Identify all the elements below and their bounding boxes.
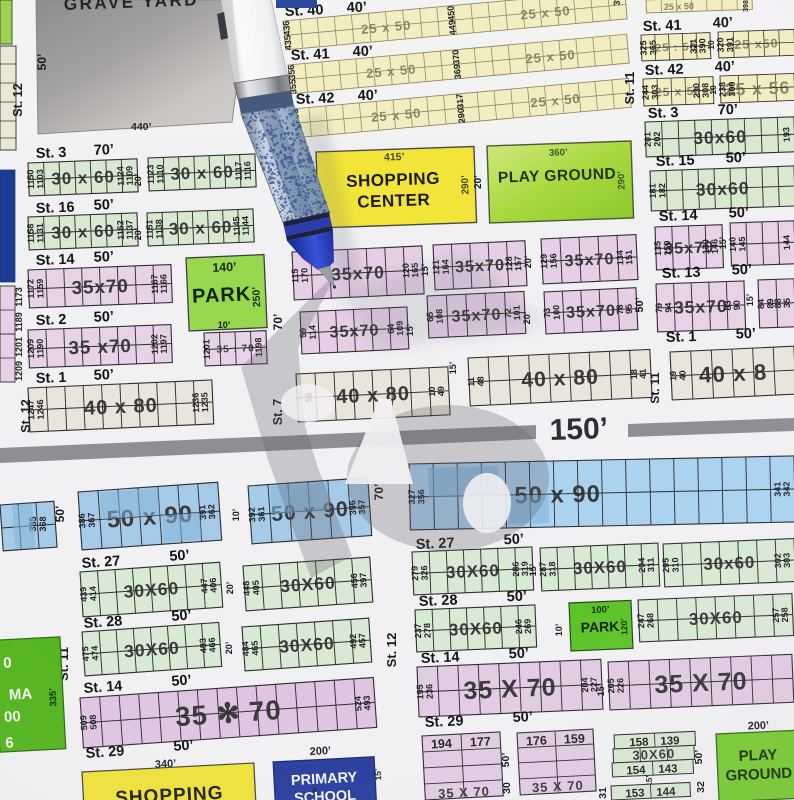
svg-text:120’: 120’: [619, 618, 630, 635]
svg-text:369: 369: [452, 64, 463, 80]
svg-text:50’: 50’: [171, 672, 192, 689]
svg-text:150: 150: [662, 240, 673, 255]
svg-text:474: 474: [89, 645, 100, 661]
svg-text:360’: 360’: [549, 147, 568, 159]
svg-text:32: 32: [695, 781, 707, 793]
svg-text:398: 398: [743, 0, 750, 12]
svg-text:156: 156: [548, 253, 559, 268]
svg-text:193: 193: [781, 127, 792, 142]
svg-text:50’: 50’: [93, 249, 114, 266]
svg-text:236: 236: [424, 684, 435, 699]
svg-text:100’: 100’: [591, 604, 610, 616]
svg-text:1201: 1201: [201, 339, 212, 359]
svg-text:290: 290: [456, 108, 467, 124]
svg-text:PARK: PARK: [580, 618, 619, 636]
svg-text:MA: MA: [8, 685, 32, 703]
svg-text:415’: 415’: [384, 151, 405, 164]
svg-text:50’: 50’: [500, 753, 512, 768]
svg-text:0: 0: [3, 654, 12, 671]
svg-text:144: 144: [656, 786, 676, 799]
svg-text:St. 42: St. 42: [645, 62, 684, 79]
svg-text:310: 310: [670, 557, 681, 572]
svg-text:1116: 1116: [242, 161, 253, 180]
svg-text:365: 365: [648, 40, 659, 55]
svg-text:50’: 50’: [169, 547, 190, 564]
svg-text:15’: 15’: [596, 684, 606, 697]
svg-text:50’: 50’: [693, 750, 705, 765]
svg-text:457: 457: [357, 633, 368, 649]
svg-text:362: 362: [206, 504, 217, 520]
svg-text:CENTER: CENTER: [357, 190, 431, 212]
svg-text:PLAY: PLAY: [738, 746, 777, 765]
svg-text:St. 12: St. 12: [384, 633, 399, 668]
svg-text:50’: 50’: [736, 326, 757, 343]
svg-text:303: 303: [650, 84, 661, 99]
svg-text:50’: 50’: [512, 709, 533, 726]
svg-text:100: 100: [551, 305, 562, 320]
svg-text:St. 14: St. 14: [36, 252, 75, 269]
svg-text:15’: 15’: [528, 564, 538, 577]
svg-text:15’: 15’: [718, 237, 728, 250]
svg-text:31: 31: [597, 787, 609, 799]
svg-text:143: 143: [658, 763, 678, 776]
svg-text:157: 157: [513, 256, 524, 271]
svg-text:398: 398: [611, 0, 622, 6]
svg-text:1173: 1173: [14, 287, 24, 307]
svg-text:449: 449: [447, 20, 458, 36]
svg-text:50’: 50’: [53, 506, 67, 523]
svg-text:30: 30: [501, 782, 513, 794]
svg-text:95: 95: [624, 304, 634, 314]
svg-text:154: 154: [626, 764, 646, 777]
svg-text:278: 278: [422, 623, 433, 638]
svg-text:258: 258: [779, 607, 790, 622]
svg-text:370: 370: [450, 49, 461, 65]
svg-text:50’: 50’: [729, 205, 750, 222]
svg-text:450: 450: [445, 5, 456, 21]
svg-text:1209: 1209: [14, 361, 24, 381]
svg-text:309: 309: [727, 81, 738, 96]
svg-text:1197: 1197: [158, 334, 169, 354]
svg-text:40’: 40’: [713, 15, 734, 32]
svg-text:St. 2: St. 2: [36, 312, 67, 329]
svg-text:1189: 1189: [14, 312, 24, 332]
svg-text:20’: 20’: [225, 582, 235, 595]
svg-text:40’: 40’: [715, 59, 736, 76]
svg-text:St. 12: St. 12: [19, 399, 33, 432]
svg-text:508: 508: [88, 714, 99, 730]
svg-text:1159: 1159: [35, 279, 46, 299]
svg-text:318: 318: [547, 561, 558, 576]
svg-text:194: 194: [431, 736, 453, 751]
svg-text:50’: 50’: [35, 54, 49, 71]
svg-text:335’: 335’: [48, 688, 60, 707]
svg-text:St. 29: St. 29: [424, 713, 463, 731]
svg-text:St. 3: St. 3: [36, 145, 67, 162]
svg-text:SCHOOL: SCHOOL: [294, 788, 357, 800]
svg-text:St. 11: St. 11: [648, 372, 662, 404]
svg-text:»: »: [309, 787, 319, 792]
svg-text:40 x 8: 40 x 8: [698, 360, 768, 388]
svg-text:1166: 1166: [158, 274, 169, 294]
svg-text:St. 13: St. 13: [662, 265, 701, 282]
svg-text:290’: 290’: [460, 175, 472, 195]
svg-text:290’: 290’: [616, 171, 628, 190]
svg-text:200’: 200’: [747, 720, 769, 733]
svg-text:15’: 15’: [745, 294, 755, 307]
svg-text:40: 40: [677, 370, 687, 380]
svg-text:00: 00: [4, 708, 22, 726]
svg-text:10’: 10’: [554, 624, 564, 637]
svg-text:465: 465: [249, 640, 260, 656]
svg-text:493: 493: [362, 695, 373, 711]
svg-text:50’: 50’: [726, 150, 747, 167]
svg-text:202: 202: [652, 131, 663, 146]
svg-text:35 : 70: 35 : 70: [216, 343, 255, 355]
svg-text:1201: 1201: [14, 337, 24, 357]
svg-text:177: 177: [470, 734, 492, 749]
svg-text:182: 182: [657, 183, 668, 198]
svg-text:St. 14: St. 14: [83, 678, 123, 697]
svg-text:1235: 1235: [199, 392, 210, 412]
svg-text:466: 466: [207, 637, 218, 653]
svg-text:35 X 70: 35 X 70: [532, 778, 585, 796]
svg-text:391: 391: [725, 37, 736, 52]
svg-text:1246: 1246: [35, 399, 46, 419]
svg-text:414: 414: [88, 586, 99, 602]
svg-text:70’: 70’: [718, 102, 739, 119]
svg-text:226: 226: [615, 678, 626, 693]
svg-text:20’: 20’: [224, 642, 234, 655]
svg-text:317: 317: [454, 93, 465, 109]
svg-text:145: 145: [737, 236, 748, 251]
svg-text:50’: 50’: [171, 607, 192, 624]
svg-text:311: 311: [646, 557, 657, 572]
svg-text:200’: 200’: [309, 745, 331, 758]
svg-text:153: 153: [625, 787, 645, 800]
svg-text:159: 159: [564, 731, 586, 746]
svg-text:20’: 20’: [133, 228, 143, 241]
svg-text:St. 15: St. 15: [656, 153, 695, 170]
svg-text:114: 114: [307, 325, 318, 340]
svg-text:50’: 50’: [506, 588, 527, 605]
svg-text:50’: 50’: [93, 367, 114, 384]
svg-text:269: 269: [522, 619, 533, 634]
svg-text:St. 1: St. 1: [666, 329, 697, 346]
svg-text:St. 14: St. 14: [420, 649, 459, 667]
svg-text:50’: 50’: [634, 297, 646, 312]
svg-text:151: 151: [624, 250, 635, 265]
svg-text:170: 170: [299, 268, 310, 283]
svg-text:25 x 50: 25 x 50: [664, 1, 694, 12]
svg-text:405: 405: [251, 580, 262, 596]
svg-text:150’: 150’: [549, 412, 609, 447]
svg-text:436: 436: [281, 20, 292, 36]
svg-text:70’: 70’: [93, 142, 114, 159]
svg-text:368: 368: [38, 516, 48, 531]
svg-text:20’: 20’: [523, 256, 533, 269]
svg-text:50’: 50’: [732, 262, 753, 279]
svg-text:326: 326: [419, 565, 430, 580]
svg-text:10’: 10’: [218, 320, 231, 330]
svg-text:140’: 140’: [212, 260, 237, 275]
svg-text:6: 6: [5, 734, 14, 751]
svg-text:342: 342: [781, 481, 791, 496]
svg-text:50’: 50’: [93, 309, 114, 326]
svg-text:St. 1: St. 1: [36, 370, 67, 387]
svg-text:94: 94: [663, 302, 673, 312]
svg-text:49: 49: [436, 386, 446, 396]
svg-text:250’: 250’: [250, 286, 263, 307]
svg-text:1103: 1103: [35, 169, 46, 189]
svg-text:50’: 50’: [508, 645, 529, 662]
svg-text:176: 176: [526, 733, 548, 748]
svg-text:St. 3: St. 3: [648, 105, 679, 122]
svg-text:1110: 1110: [155, 164, 166, 183]
svg-text:15’: 15’: [373, 768, 384, 780]
svg-text:90: 90: [732, 300, 742, 310]
svg-text:20’: 20’: [133, 174, 143, 187]
svg-text:1131: 1131: [35, 223, 46, 243]
svg-text:50’: 50’: [93, 197, 114, 214]
svg-text:St. 11: St. 11: [623, 72, 637, 105]
svg-text:48: 48: [475, 376, 485, 386]
svg-text:15’: 15’: [448, 362, 458, 375]
svg-text:406: 406: [208, 577, 219, 593]
svg-text:St. 29: St. 29: [85, 743, 125, 762]
svg-text:GROUND: GROUND: [725, 765, 793, 785]
svg-text:41: 41: [638, 369, 648, 379]
svg-text:St. 14: St. 14: [659, 208, 698, 225]
svg-text:268: 268: [645, 613, 656, 628]
svg-text:144: 144: [781, 235, 792, 250]
svg-text:St. 16: St. 16: [36, 200, 75, 217]
svg-text:367: 367: [86, 512, 97, 528]
svg-text:440’: 440’: [131, 121, 152, 133]
svg-text:St. 41: St. 41: [643, 18, 682, 35]
svg-text:10’: 10’: [231, 509, 241, 522]
svg-text:397: 397: [358, 572, 369, 588]
svg-text:PARK: PARK: [192, 283, 252, 308]
svg-text:35 X 70: 35 X 70: [438, 784, 491, 800]
svg-text:50’: 50’: [173, 737, 194, 754]
svg-text:35: 35: [782, 298, 792, 308]
svg-text:20’: 20’: [473, 175, 484, 189]
svg-text:361: 361: [256, 506, 267, 522]
svg-text:St. 28: St. 28: [418, 592, 457, 610]
svg-text:1190: 1190: [35, 339, 46, 359]
svg-text:SHOPPING: SHOPPING: [346, 169, 440, 191]
svg-text:303: 303: [781, 553, 792, 568]
svg-text:1138: 1138: [154, 219, 165, 239]
svg-text:1144: 1144: [240, 216, 251, 236]
svg-text:St. 12: St. 12: [11, 83, 25, 116]
